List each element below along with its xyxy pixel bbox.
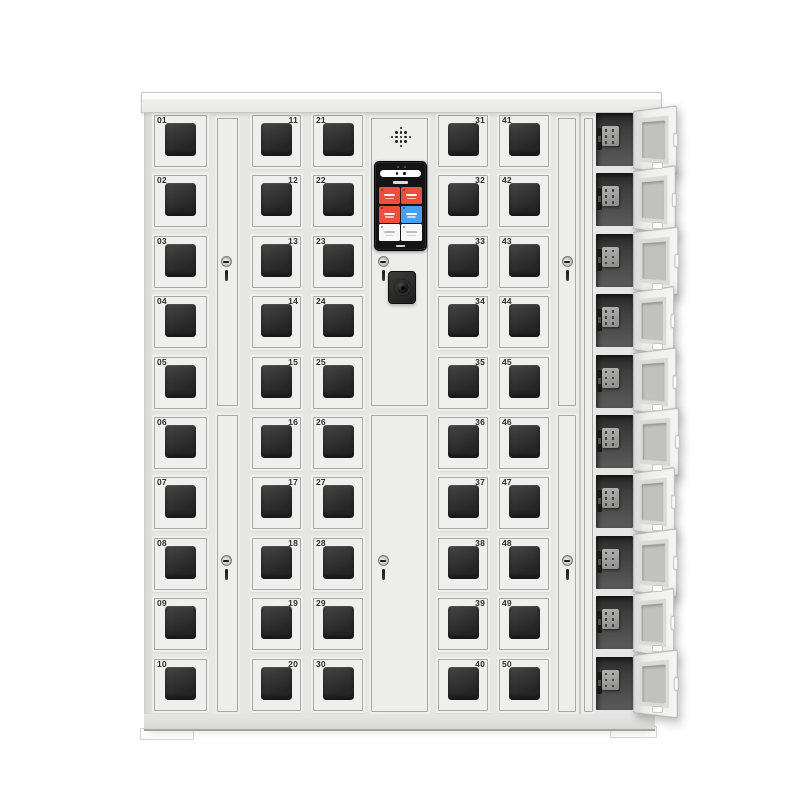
door-window <box>323 365 354 398</box>
door-number-label: 46 <box>502 418 512 427</box>
door-window <box>448 304 479 337</box>
door-window <box>509 365 540 398</box>
socket-hole <box>605 491 607 494</box>
door-window <box>448 244 479 277</box>
screen-tile-3[interactable] <box>379 206 400 223</box>
door-number-label: 42 <box>502 176 512 185</box>
locker-door-43[interactable]: 43 <box>497 234 551 290</box>
door-number-label: 20 <box>288 660 298 669</box>
locker-cabinet: 0102030405060708091011121314151617181920… <box>0 0 800 800</box>
door-number-label: 39 <box>475 599 485 608</box>
door-window <box>165 546 196 579</box>
door-window <box>323 485 354 518</box>
locker-door-23[interactable]: 23 <box>311 234 365 290</box>
locker-door-01[interactable]: 01 <box>152 113 209 169</box>
socket-hole <box>612 316 614 319</box>
socket-hole <box>605 262 607 265</box>
door-number-label: 32 <box>475 176 485 185</box>
door-number-label: 26 <box>316 418 326 427</box>
speaker-grille-dot <box>395 140 397 142</box>
door-number-label: 29 <box>316 599 326 608</box>
power-socket-icon <box>602 307 619 327</box>
locker-door-07[interactable]: 07 <box>152 475 209 531</box>
locker-door-46[interactable]: 46 <box>497 415 551 471</box>
open-door-latch-icon <box>675 435 680 449</box>
open-door-latch-icon <box>671 314 676 329</box>
door-window <box>261 667 292 700</box>
tile-text-line <box>406 194 418 196</box>
socket-hole <box>612 558 614 561</box>
door-number-label: 16 <box>288 418 298 427</box>
door-window <box>323 123 354 156</box>
locker-door-41[interactable]: 41 <box>497 113 551 169</box>
speaker-grille-dot <box>404 131 406 133</box>
socket-hole <box>612 256 614 259</box>
door-number-label: 22 <box>316 176 326 185</box>
door-window <box>261 123 292 156</box>
socket-hole <box>612 679 614 682</box>
power-socket-icon <box>602 186 619 206</box>
door-number-label: 04 <box>157 297 167 306</box>
keyhole-lock[interactable] <box>562 256 573 281</box>
tile-corner-dot <box>381 226 383 228</box>
tile-text-line <box>407 198 415 200</box>
open-door-window-frame <box>639 116 668 165</box>
socket-hole <box>605 371 607 374</box>
door-window <box>448 485 479 518</box>
door-number-label: 05 <box>157 358 167 367</box>
door-catch-nub <box>652 162 663 169</box>
locker-door-26[interactable]: 26 <box>311 415 365 471</box>
tile-corner-dot <box>403 207 405 209</box>
screen-tile-4[interactable] <box>401 206 422 223</box>
socket-hole <box>605 497 607 500</box>
screen-tile-1[interactable] <box>379 187 400 204</box>
tile-text-line <box>384 231 396 233</box>
socket-hole <box>605 558 607 561</box>
tile-text-line <box>385 235 393 237</box>
open-door-window-frame <box>639 176 667 225</box>
socket-hole <box>605 189 607 192</box>
keyhole-circle-icon <box>562 555 573 566</box>
tile-text-line <box>406 213 418 215</box>
tile-text-line <box>406 231 418 233</box>
door-number-label: 09 <box>157 599 167 608</box>
power-socket-icon <box>602 126 619 146</box>
open-door-latch-icon <box>674 254 679 268</box>
cabinet-top-panel <box>141 92 662 113</box>
door-window <box>509 183 540 216</box>
keyhole-lock[interactable] <box>221 555 232 580</box>
door-number-label: 30 <box>316 660 326 669</box>
socket-hole <box>612 497 614 500</box>
keyhole-slot-icon <box>382 569 385 580</box>
socket-hole <box>612 262 614 265</box>
door-window <box>261 485 292 518</box>
locker-door-33[interactable]: 33 <box>436 234 490 290</box>
open-door-window-frame <box>640 237 670 285</box>
socket-hole <box>605 679 607 682</box>
door-number-label: 28 <box>316 539 326 548</box>
door-number-label: 47 <box>502 478 512 487</box>
door-number-label: 43 <box>502 237 512 246</box>
tile-text-line <box>385 216 393 218</box>
locker-door-22[interactable]: 22 <box>311 173 365 229</box>
locker-door-16[interactable]: 16 <box>250 415 303 471</box>
speaker-grille-dot <box>400 140 402 142</box>
locker-door-09[interactable]: 09 <box>152 596 209 652</box>
power-socket-icon <box>602 428 619 448</box>
door-number-label: 06 <box>157 418 167 427</box>
door-number-label: 15 <box>288 358 298 367</box>
door-catch-nub <box>652 524 663 531</box>
door-window <box>165 667 196 700</box>
open-door-latch-icon <box>671 616 676 631</box>
open-door-window-frame <box>639 599 666 648</box>
open-section-stile <box>582 116 595 714</box>
door-catch-nub <box>652 343 663 350</box>
socket-hole <box>612 377 614 380</box>
camera-pupil-icon <box>400 285 405 290</box>
locker-door-18[interactable]: 18 <box>250 536 303 592</box>
socket-hole <box>612 673 614 676</box>
screen-tile-2[interactable] <box>401 187 422 204</box>
socket-hole <box>605 195 607 198</box>
open-door-latch-icon <box>671 496 676 511</box>
door-number-label: 08 <box>157 539 167 548</box>
door-window <box>448 123 479 156</box>
socket-hole <box>605 250 607 253</box>
door-window <box>165 425 196 458</box>
tile-text-line <box>385 198 393 200</box>
door-number-label: 34 <box>475 297 485 306</box>
door-number-label: 45 <box>502 358 512 367</box>
locker-door-15[interactable]: 15 <box>250 355 303 411</box>
screen-tile-5[interactable] <box>379 224 400 241</box>
socket-hole <box>612 564 614 567</box>
socket-hole <box>612 612 614 615</box>
socket-hole <box>612 371 614 374</box>
locker-door-39[interactable]: 39 <box>436 596 490 652</box>
door-number-label: 12 <box>288 176 298 185</box>
screen-tile-6[interactable] <box>401 224 422 241</box>
door-window <box>165 365 196 398</box>
door-window <box>261 244 292 277</box>
open-door-window-frame <box>639 538 668 587</box>
keyhole-lock[interactable] <box>562 555 573 580</box>
socket-hole <box>605 377 607 380</box>
socket-hole <box>605 201 607 204</box>
product-photo-smart-locker: 0102030405060708091011121314151617181920… <box>0 0 800 800</box>
door-number-label: 48 <box>502 539 512 548</box>
keyhole-circle-icon <box>221 256 232 267</box>
door-number-label: 25 <box>316 358 326 367</box>
door-window <box>323 425 354 458</box>
socket-hole <box>605 437 607 440</box>
locker-door-31[interactable]: 31 <box>436 113 490 169</box>
locker-door-37[interactable]: 37 <box>436 475 490 531</box>
locker-door-47[interactable]: 47 <box>497 475 551 531</box>
door-window <box>323 304 354 337</box>
door-window <box>509 244 540 277</box>
door-window <box>509 485 540 518</box>
locker-door-38[interactable]: 38 <box>436 536 490 592</box>
socket-hole <box>605 685 607 688</box>
door-number-label: 02 <box>157 176 167 185</box>
locker-door-50[interactable]: 50 <box>497 657 551 713</box>
locker-door-05[interactable]: 05 <box>152 355 209 411</box>
door-window <box>509 667 540 700</box>
door-window <box>261 365 292 398</box>
door-catch-nub <box>652 222 663 229</box>
locker-door-10[interactable]: 10 <box>152 657 209 713</box>
tile-corner-dot <box>381 207 383 209</box>
socket-hole <box>605 673 607 676</box>
keyhole-circle-icon <box>378 256 389 267</box>
open-door-latch-icon <box>673 133 678 147</box>
speaker-grille-dot <box>400 131 402 133</box>
socket-hole <box>612 624 614 627</box>
socket-hole <box>612 618 614 621</box>
door-window <box>509 606 540 639</box>
camera-dot-icon <box>403 172 406 175</box>
power-socket-icon <box>602 670 619 690</box>
door-window <box>165 304 196 337</box>
locker-door-13[interactable]: 13 <box>250 234 303 290</box>
door-window <box>448 183 479 216</box>
socket-hole <box>612 685 614 688</box>
screen-home-bar <box>396 245 405 247</box>
door-number-label: 41 <box>502 116 512 125</box>
door-catch-nub <box>652 283 663 290</box>
door-window <box>448 546 479 579</box>
console-touchscreen[interactable] <box>374 161 427 251</box>
open-door-latch-icon <box>674 677 679 691</box>
door-window <box>165 485 196 518</box>
keyhole-slot-icon <box>566 569 569 580</box>
door-number-label: 13 <box>288 237 298 246</box>
locker-door-42[interactable]: 42 <box>497 173 551 229</box>
door-catch-nub <box>652 464 663 471</box>
socket-hole <box>612 141 614 144</box>
open-door-window-frame <box>639 297 666 346</box>
door-window <box>165 606 196 639</box>
door-number-label: 27 <box>316 478 326 487</box>
locker-door-20[interactable]: 20 <box>250 657 303 713</box>
power-socket-icon <box>602 609 619 629</box>
keyhole-slot-icon <box>225 569 228 580</box>
socket-hole <box>612 443 614 446</box>
locker-door-32[interactable]: 32 <box>436 173 490 229</box>
power-socket-icon <box>602 549 619 569</box>
door-catch-nub <box>652 706 663 713</box>
panel-outline <box>584 118 593 712</box>
locker-door-02[interactable]: 02 <box>152 173 209 229</box>
socket-hole <box>612 195 614 198</box>
locker-door-29[interactable]: 29 <box>311 596 365 652</box>
socket-hole <box>605 135 607 138</box>
door-number-label: 35 <box>475 358 485 367</box>
locker-door-25[interactable]: 25 <box>311 355 365 411</box>
door-number-label: 50 <box>502 660 512 669</box>
socket-hole <box>605 322 607 325</box>
door-catch-nub <box>652 585 663 592</box>
door-number-label: 24 <box>316 297 326 306</box>
door-window <box>509 123 540 156</box>
locker-door-34[interactable]: 34 <box>436 294 490 350</box>
door-number-label: 07 <box>157 478 167 487</box>
speaker-grille-dot <box>395 131 397 133</box>
keyhole-slot-icon <box>566 270 569 281</box>
locker-door-14[interactable]: 14 <box>250 294 303 350</box>
locker-door-27[interactable]: 27 <box>311 475 365 531</box>
locker-door-12[interactable]: 12 <box>250 173 303 229</box>
door-number-label: 17 <box>288 478 298 487</box>
socket-hole <box>605 310 607 313</box>
tile-text-line <box>384 194 396 196</box>
socket-hole <box>605 129 607 132</box>
door-number-label: 14 <box>288 297 298 306</box>
door-window <box>323 183 354 216</box>
door-window <box>323 546 354 579</box>
screen-title-text <box>393 181 408 184</box>
camera-module <box>388 271 416 304</box>
open-door-latch-icon <box>673 375 678 389</box>
cabinet-section-seam <box>579 113 581 714</box>
socket-hole <box>612 135 614 138</box>
open-door-latch-icon <box>673 556 678 570</box>
door-catch-nub <box>652 404 663 411</box>
speaker-grille-dot <box>404 136 406 138</box>
door-window <box>261 606 292 639</box>
door-number-label: 19 <box>288 599 298 608</box>
locker-door-19[interactable]: 19 <box>250 596 303 652</box>
door-window <box>165 244 196 277</box>
locker-door-03[interactable]: 03 <box>152 234 209 290</box>
open-door-window-frame <box>639 659 669 708</box>
door-window <box>261 546 292 579</box>
door-window <box>509 304 540 337</box>
tile-corner-dot <box>403 189 405 191</box>
locker-door-04[interactable]: 04 <box>152 294 209 350</box>
socket-hole <box>612 383 614 386</box>
speaker-grille-dot <box>395 136 397 138</box>
power-socket-icon <box>602 368 619 388</box>
locker-door-28[interactable]: 28 <box>311 536 365 592</box>
door-window <box>448 667 479 700</box>
door-window <box>323 244 354 277</box>
door-window <box>448 606 479 639</box>
socket-hole <box>605 552 607 555</box>
door-window <box>448 365 479 398</box>
locker-door-30[interactable]: 30 <box>311 657 365 713</box>
door-number-label: 33 <box>475 237 485 246</box>
camera-dot-icon <box>396 172 399 175</box>
locker-door-40[interactable]: 40 <box>436 657 490 713</box>
door-number-label: 37 <box>475 478 485 487</box>
socket-hole <box>612 491 614 494</box>
socket-hole <box>612 552 614 555</box>
socket-hole <box>612 503 614 506</box>
socket-hole <box>605 612 607 615</box>
door-number-label: 21 <box>316 116 326 125</box>
door-window <box>323 606 354 639</box>
locker-door-49[interactable]: 49 <box>497 596 551 652</box>
door-window <box>509 546 540 579</box>
door-number-label: 49 <box>502 599 512 608</box>
door-number-label: 36 <box>475 418 485 427</box>
speaker-grille-dot <box>404 140 406 142</box>
locker-door-48[interactable]: 48 <box>497 536 551 592</box>
keyhole-slot-icon <box>225 270 228 281</box>
screen-camera-pill <box>380 170 421 177</box>
tile-text-line <box>407 235 415 237</box>
locker-door-35[interactable]: 35 <box>436 355 490 411</box>
locker-door-36[interactable]: 36 <box>436 415 490 471</box>
socket-hole <box>605 431 607 434</box>
locker-door-21[interactable]: 21 <box>311 113 365 169</box>
socket-hole <box>605 316 607 319</box>
open-door-window-frame <box>639 357 668 406</box>
socket-hole <box>605 564 607 567</box>
locker-door-08[interactable]: 08 <box>152 536 209 592</box>
door-number-label: 01 <box>157 116 167 125</box>
keyhole-circle-icon <box>562 256 573 267</box>
locker-door-45[interactable]: 45 <box>497 355 551 411</box>
locker-door-06[interactable]: 06 <box>152 415 209 471</box>
door-window <box>509 425 540 458</box>
socket-hole <box>612 129 614 132</box>
socket-hole <box>605 141 607 144</box>
keyhole-lock[interactable] <box>221 256 232 281</box>
tile-corner-dot <box>403 226 405 228</box>
keyhole-lock[interactable] <box>378 256 389 281</box>
door-number-label: 44 <box>502 297 512 306</box>
door-number-label: 40 <box>475 660 485 669</box>
door-window <box>165 123 196 156</box>
tile-corner-dot <box>381 189 383 191</box>
socket-hole <box>612 322 614 325</box>
socket-hole <box>605 256 607 259</box>
keyhole-circle-icon <box>378 555 389 566</box>
screen-sensor-dot <box>397 166 399 168</box>
door-window <box>323 667 354 700</box>
locker-door-44[interactable]: 44 <box>497 294 551 350</box>
keyhole-lock[interactable] <box>378 555 389 580</box>
open-door-window-frame <box>639 478 667 527</box>
door-window <box>448 425 479 458</box>
socket-hole <box>612 201 614 204</box>
socket-hole <box>605 383 607 386</box>
socket-hole <box>612 431 614 434</box>
open-door-latch-icon <box>672 194 677 209</box>
locker-door-11[interactable]: 11 <box>250 113 303 169</box>
door-number-label: 23 <box>316 237 326 246</box>
door-window <box>261 304 292 337</box>
socket-hole <box>605 503 607 506</box>
door-catch-nub <box>652 645 663 652</box>
socket-hole <box>612 437 614 440</box>
locker-door-17[interactable]: 17 <box>250 475 303 531</box>
socket-hole <box>605 618 607 621</box>
door-number-label: 11 <box>289 116 298 125</box>
socket-hole <box>605 624 607 627</box>
tile-text-line <box>407 216 415 218</box>
locker-door-24[interactable]: 24 <box>311 294 365 350</box>
door-number-label: 18 <box>288 539 298 548</box>
door-window <box>261 425 292 458</box>
open-door-window-frame <box>640 418 671 466</box>
